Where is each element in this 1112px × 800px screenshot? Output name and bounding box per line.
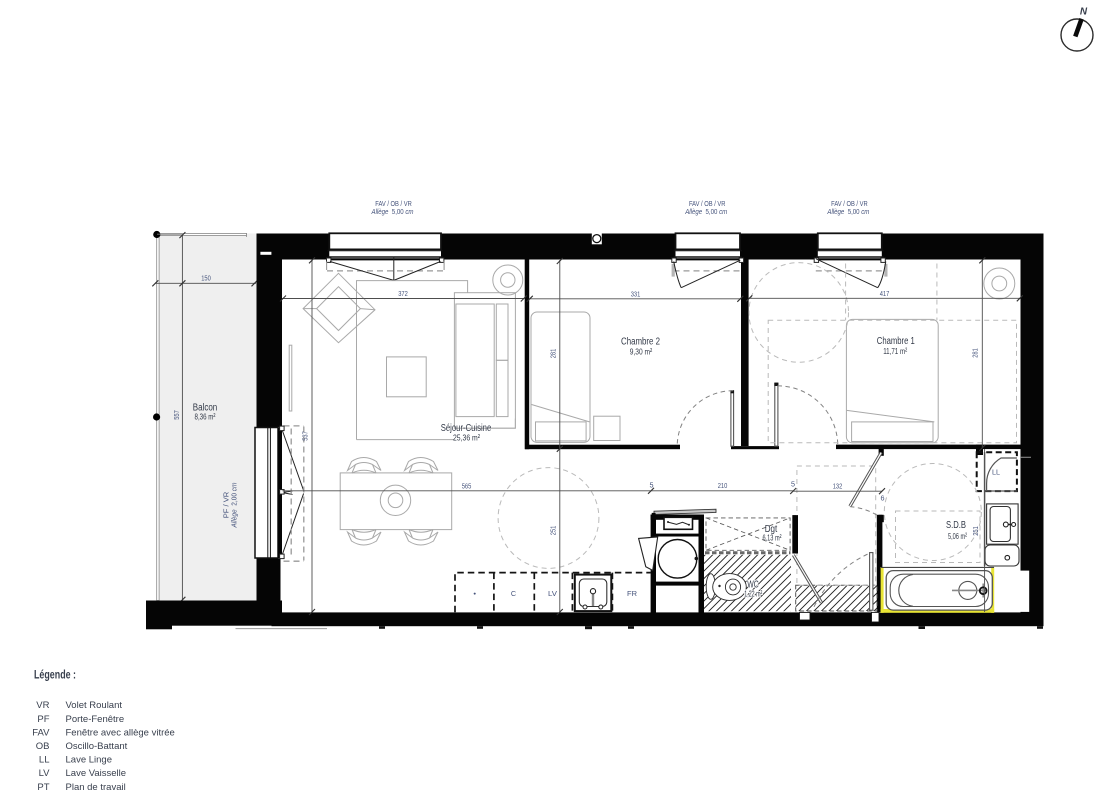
svg-text:1,22 m²: 1,22 m² xyxy=(744,588,762,598)
svg-text:Lave Linge: Lave Linge xyxy=(66,755,112,766)
svg-text:LL: LL xyxy=(39,755,50,766)
svg-text:5: 5 xyxy=(650,481,654,490)
svg-text:LV: LV xyxy=(548,589,557,598)
svg-text:PT: PT xyxy=(37,782,49,793)
svg-text:331: 331 xyxy=(631,289,641,298)
svg-text:Plan de travail: Plan de travail xyxy=(66,782,126,793)
svg-text:Lave Vaisselle: Lave Vaisselle xyxy=(66,768,127,779)
svg-text:251: 251 xyxy=(548,526,557,536)
svg-text:Légende :: Légende : xyxy=(34,670,76,682)
svg-text:Allège 2,00 cm: Allège 2,00 cm xyxy=(230,483,239,529)
svg-text:5,06 m²: 5,06 m² xyxy=(948,531,967,541)
svg-text:Allège 5,00 cm: Allège 5,00 cm xyxy=(684,207,727,216)
svg-text:Allège 5,00 cm: Allège 5,00 cm xyxy=(827,207,870,216)
svg-text:281: 281 xyxy=(970,348,979,358)
svg-text:N: N xyxy=(1080,7,1088,18)
svg-text:FR: FR xyxy=(627,589,637,598)
svg-text:LL: LL xyxy=(992,468,1000,477)
svg-text:25,36 m²: 25,36 m² xyxy=(453,433,480,443)
svg-text:5: 5 xyxy=(791,480,795,489)
svg-text:Porte-Fenêtre: Porte-Fenêtre xyxy=(66,714,125,725)
svg-text:132: 132 xyxy=(833,481,843,490)
svg-text:S.D.B: S.D.B xyxy=(946,520,966,531)
svg-text:11,71 m²: 11,71 m² xyxy=(883,346,907,356)
svg-text:Fenêtre avec allège vitrée: Fenêtre avec allège vitrée xyxy=(66,727,175,738)
svg-text:150: 150 xyxy=(201,274,211,283)
svg-text:Volet Roulant: Volet Roulant xyxy=(66,700,123,711)
svg-text:210: 210 xyxy=(718,481,728,490)
svg-text:PF: PF xyxy=(37,714,49,725)
svg-text:VR: VR xyxy=(36,700,49,711)
svg-text:251: 251 xyxy=(971,526,980,536)
svg-text:C: C xyxy=(511,589,516,598)
svg-text:6,13 m²: 6,13 m² xyxy=(763,533,782,543)
svg-text:281: 281 xyxy=(548,349,557,359)
svg-text:9,30 m²: 9,30 m² xyxy=(630,346,653,356)
svg-text:565: 565 xyxy=(462,481,472,490)
svg-text:557: 557 xyxy=(172,410,181,420)
svg-text:Allège 5,00 cm: Allège 5,00 cm xyxy=(371,207,414,216)
svg-text:417: 417 xyxy=(880,289,890,298)
svg-text:372: 372 xyxy=(398,289,408,298)
svg-text:FAV: FAV xyxy=(32,727,50,738)
svg-text:Oscillo-Battant: Oscillo-Battant xyxy=(66,741,128,752)
svg-text:OB: OB xyxy=(36,741,50,752)
svg-text:LV: LV xyxy=(39,768,51,779)
svg-text:537: 537 xyxy=(301,431,310,441)
svg-text:8,36 m²: 8,36 m² xyxy=(195,412,216,422)
svg-text:6: 6 xyxy=(881,494,885,503)
